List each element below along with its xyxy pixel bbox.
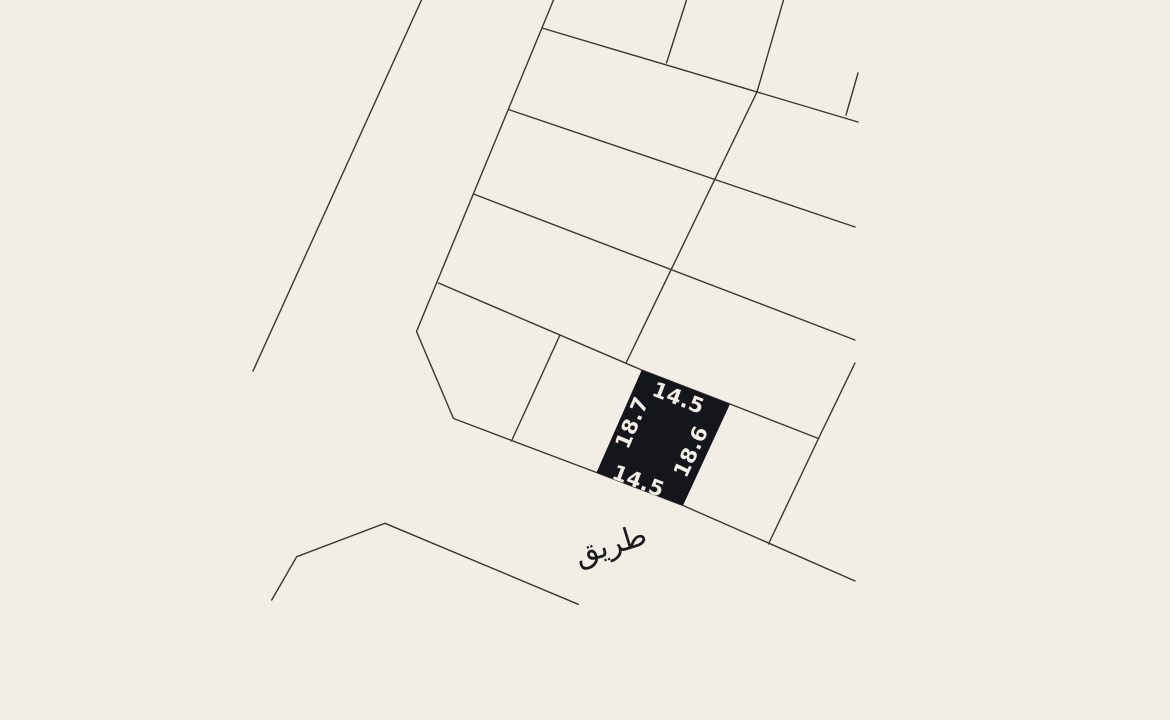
plot-map-stage: 14.518.718.614.5طريق [0, 0, 1170, 720]
map-background [0, 0, 1170, 720]
plot-map-svg: 14.518.718.614.5طريق [0, 0, 1170, 720]
